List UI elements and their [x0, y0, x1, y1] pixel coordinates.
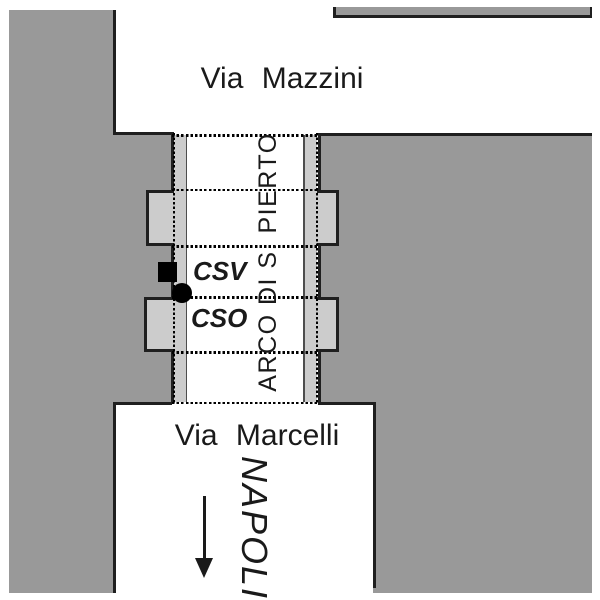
dotted-crossing-3	[172, 245, 318, 248]
border-mazzini-south-left	[113, 132, 174, 135]
curb-line-east	[303, 135, 305, 402]
building-block-left-upper	[9, 10, 115, 133]
csv-marker-square	[158, 262, 177, 282]
border-arco-east	[318, 133, 321, 402]
building-block-left-lower	[9, 402, 115, 593]
border-mazzini-south-right	[318, 133, 592, 136]
border-marcelli-north-left	[115, 402, 172, 405]
border-left-block-right-upper	[113, 10, 116, 135]
building-block-left-mid	[9, 133, 174, 402]
curb-line-west	[186, 135, 188, 402]
annex-east-upper	[317, 190, 339, 246]
annex-east-lower	[317, 297, 339, 352]
annex-west-lower	[144, 297, 174, 352]
cso-marker-dot	[172, 283, 192, 303]
street-label-via-marcelli: Via Marcelli	[107, 419, 407, 453]
dotted-crossing-5	[172, 351, 318, 354]
dotted-crossing-2	[172, 189, 318, 192]
south-arrow-icon	[203, 496, 206, 562]
street-label-via-mazzini: Via Mazzini	[132, 62, 432, 96]
building-edge-top-bar	[333, 7, 592, 18]
dotted-crossing-4	[172, 296, 318, 299]
building-block-right-upper	[318, 133, 592, 402]
annex-west-upper	[146, 190, 174, 246]
dotted-crossing-6	[172, 402, 318, 405]
stop-label-csv: CSV	[193, 256, 246, 287]
south-arrow-head-icon	[195, 558, 213, 578]
dotted-crossing-1	[172, 134, 318, 137]
destination-label-napoli: NAPOLI	[231, 453, 275, 600]
street-label-arco-di-s-pierto: ARCO DI S. PIERTO	[254, 122, 284, 402]
street-map: Via Mazzini Via Marcelli ARCO DI S. PIER…	[0, 0, 600, 600]
stop-label-cso: CSO	[191, 303, 247, 334]
dotted-edge-east	[316, 133, 319, 403]
border-marcelli-north-right	[318, 402, 376, 405]
